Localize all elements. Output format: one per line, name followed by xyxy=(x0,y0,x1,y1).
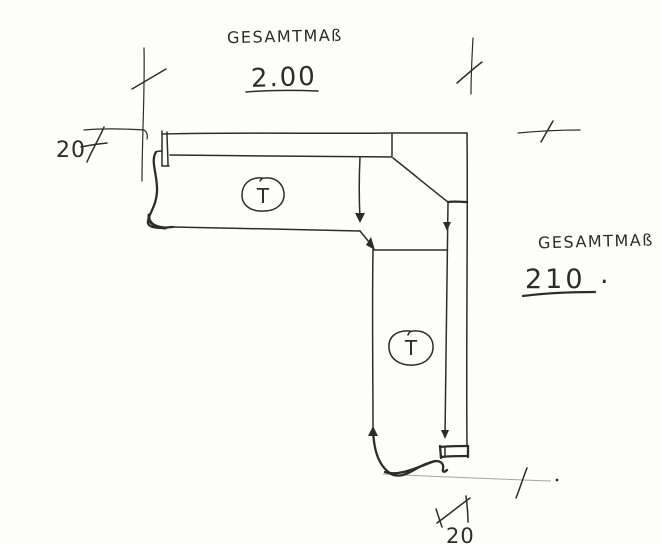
right-edge-line xyxy=(467,133,468,446)
top-edge-line xyxy=(163,133,467,134)
joint-mark-letter: T xyxy=(404,336,418,360)
joint-mark-letter: T xyxy=(256,184,270,208)
tick-slash xyxy=(457,62,482,83)
seam-arrowhead xyxy=(355,213,365,223)
left-offset-annotation: 20 xyxy=(56,127,147,163)
right-dimension-value: 210 xyxy=(525,264,586,295)
joint-seam-horizontal-leg xyxy=(359,157,360,218)
bottom-offset-value: 20 xyxy=(446,524,475,544)
top-dimension-value: 2.00 xyxy=(250,62,317,94)
joint-mark-2: T xyxy=(389,331,433,365)
top-inner-line xyxy=(170,155,392,157)
tick-slash xyxy=(516,468,527,498)
countertop-outline xyxy=(148,131,468,476)
right-dimension-label: GESAMTMAß xyxy=(538,230,654,252)
bottom-break-line xyxy=(373,430,447,476)
left-offset-value: 20 xyxy=(56,138,86,163)
bottom-end-strip-top xyxy=(440,446,468,447)
left-break-line xyxy=(148,152,173,228)
offset-guide-line xyxy=(84,129,147,139)
sketch-page: GESAMTMAß 2.00 GESAMTMAß 210 . 20 xyxy=(0,0,661,544)
right-dimension-annotation: GESAMTMAß 210 . xyxy=(523,230,654,296)
left-end-strip-inner xyxy=(167,132,168,166)
right-extension-line xyxy=(518,121,580,142)
countertop-sketch: GESAMTMAß 2.00 GESAMTMAß 210 . 20 xyxy=(0,0,661,544)
top-dimension-label: GESAMTMAß xyxy=(227,26,343,47)
top-left-extension-line xyxy=(132,48,166,181)
line-end-dot xyxy=(556,479,559,482)
right-inner-line xyxy=(445,203,448,437)
extension-line-horizontal xyxy=(518,130,580,133)
extension-line-horizontal xyxy=(383,474,551,481)
offset-measure-slash xyxy=(437,498,470,523)
inner-line-arrowhead-top xyxy=(443,222,451,231)
extension-line-vertical xyxy=(142,48,144,181)
bottom-offset-annotation: 20 xyxy=(436,496,475,544)
top-right-extension-line xyxy=(457,38,482,94)
right-dimension-dot: . xyxy=(600,259,612,290)
bottom-edge-line xyxy=(173,227,360,231)
top-dimension-annotation: GESAMTMAß 2.00 xyxy=(227,26,343,94)
tick-left xyxy=(436,509,442,527)
tick-slash xyxy=(132,69,166,89)
miter-diagonal xyxy=(393,158,448,202)
inner-line-arrowhead-bottom xyxy=(441,430,449,439)
bottom-end-strip-left xyxy=(440,446,441,458)
joint-mark-1: T xyxy=(242,178,284,211)
extension-line-vertical xyxy=(471,38,473,94)
